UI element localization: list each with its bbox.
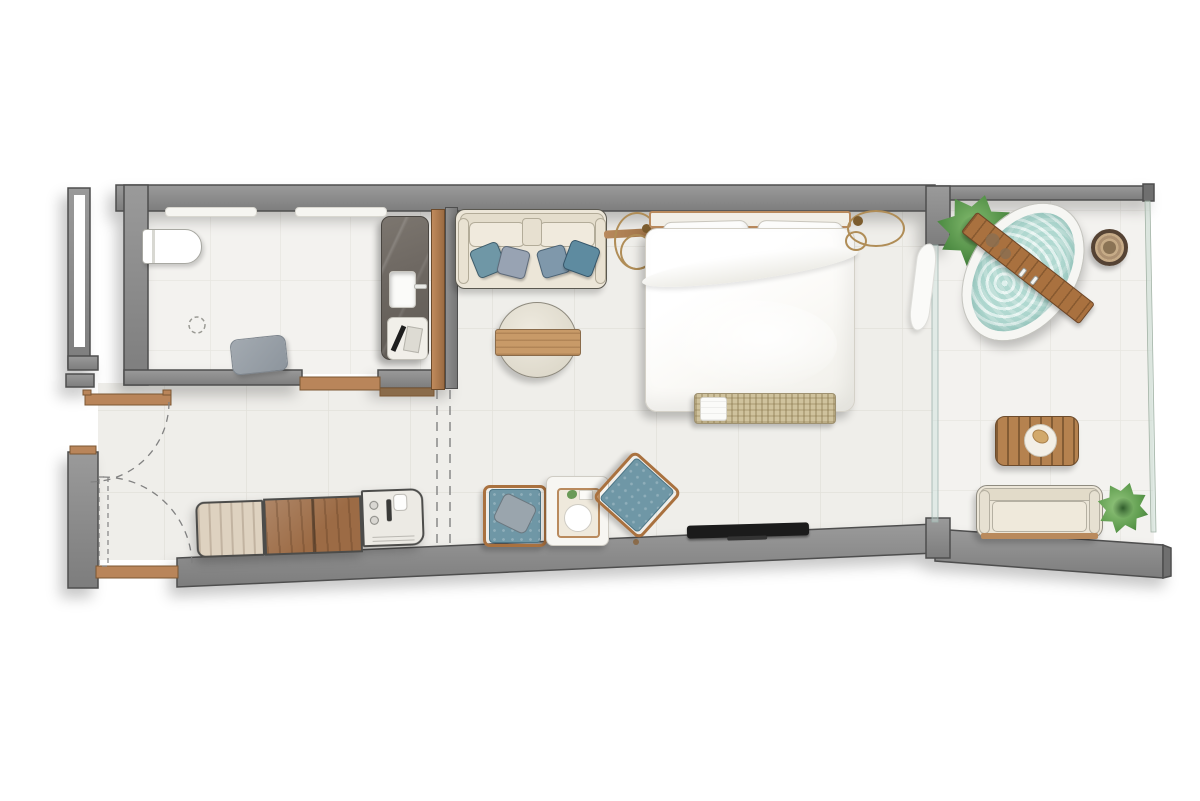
bathroom-bottom-wall-left <box>124 370 302 385</box>
card-icon <box>579 490 593 500</box>
toilet <box>142 229 202 264</box>
corridor-wall-foot <box>68 356 98 370</box>
outdoor-sofa-seat <box>992 501 1087 532</box>
bathroom-left-wall <box>124 185 148 385</box>
outdoor-sofa-armrest <box>979 490 990 534</box>
terrace-pillar-bottom <box>926 518 950 558</box>
kitchenette <box>195 488 425 558</box>
wood-knot-icon <box>983 230 1003 250</box>
entry-left-wall <box>68 452 98 588</box>
entry-threshold <box>96 566 178 578</box>
coffee-table <box>497 302 577 378</box>
hob-knob-icon <box>370 516 379 525</box>
woven-basket <box>1091 229 1128 266</box>
corridor-wall-cavity <box>74 195 85 347</box>
vanity-tray <box>387 317 428 360</box>
duvet-highlight <box>657 300 837 390</box>
plate-icon <box>564 504 592 532</box>
bathroom-door-hinge-jamb <box>83 390 91 395</box>
faucet-icon <box>414 284 427 289</box>
entry-wall-nub <box>66 374 94 387</box>
floor-plan-canvas <box>0 0 1200 801</box>
towel <box>700 397 727 421</box>
double-bed <box>645 210 855 412</box>
board-clip-icon <box>1029 275 1039 286</box>
sofa-armrest <box>458 218 469 284</box>
bath-mat <box>229 334 288 376</box>
armchair <box>483 485 547 547</box>
sofa-console <box>522 218 542 246</box>
kitchen-cabinet <box>195 500 265 558</box>
bathroom-opening-threshold <box>300 377 380 390</box>
outdoor-sofa-backrest <box>980 488 1099 501</box>
sliding-door-strip <box>380 388 434 396</box>
side-table <box>546 476 609 546</box>
faucet-icon <box>386 499 392 521</box>
kitchen-sink-unit <box>361 488 425 547</box>
vanity-sink <box>389 271 416 308</box>
bathroom-door-leaf <box>85 394 171 405</box>
coffee-table-plank <box>495 329 581 356</box>
bottom-wall-end-cap <box>1163 545 1171 578</box>
terrace-pillar-top <box>926 186 950 245</box>
bathroom-door-latch-jamb <box>163 390 171 395</box>
bed-bench <box>694 393 836 424</box>
throw-pillow <box>496 245 531 280</box>
board-clip-icon <box>1017 267 1027 278</box>
outdoor-sofa-armrest <box>1089 490 1100 534</box>
floor-plan-base <box>0 0 1200 801</box>
shower-niche <box>295 207 387 217</box>
shower-niche <box>165 207 257 217</box>
entry-door-jamb <box>70 446 96 454</box>
sofa <box>455 209 607 289</box>
wood-knot-icon <box>998 246 1013 261</box>
outdoor-sofa <box>976 485 1103 538</box>
outdoor-sofa-wood-base <box>981 533 1098 539</box>
parapet-end-cap <box>1143 184 1154 201</box>
pot-icon <box>393 494 408 511</box>
sliding-door-track <box>431 209 445 390</box>
outdoor-slatted-table <box>995 416 1079 466</box>
drainer-lines <box>372 532 414 541</box>
hob-knob-icon <box>369 501 378 510</box>
kitchen-wood-counter <box>263 495 363 555</box>
terrace-parapet-wall <box>935 186 1147 200</box>
